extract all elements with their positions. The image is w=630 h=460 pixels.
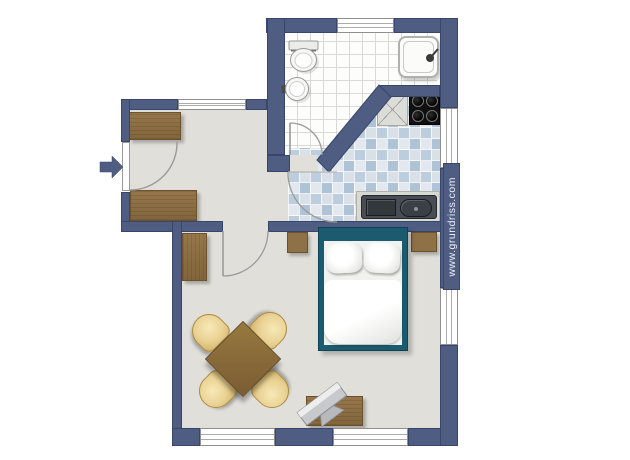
window-bathroom-top [337, 18, 394, 33]
kitchen-counter [356, 191, 440, 222]
watermark-text: www.grundriss.com [446, 177, 458, 277]
window-kitchen-right [440, 108, 458, 168]
window-glass [201, 434, 274, 440]
wall-right-bottom [440, 345, 458, 446]
entrance-arrow-icon [100, 156, 123, 178]
wardrobe [129, 112, 181, 140]
sink-drain [414, 207, 418, 211]
wall-right-top [440, 18, 458, 108]
window-bottom-right [333, 428, 408, 446]
burner [412, 110, 424, 122]
wall-living-left [172, 221, 182, 446]
sideboard [130, 190, 197, 221]
wall-bottom-1 [172, 428, 200, 446]
double-bed [318, 227, 408, 351]
kitchen-doorway-floor [288, 155, 318, 172]
window-glass [446, 109, 452, 167]
mattress [324, 241, 402, 345]
wall-bathroom-left [267, 18, 285, 155]
wall-bottom-2 [275, 428, 333, 446]
floor-plan: www.grundriss.com [0, 0, 630, 460]
tall-cabinet [182, 233, 207, 281]
burner [426, 110, 438, 122]
window-bedroom-right [440, 288, 458, 345]
window-glass [179, 103, 245, 106]
nightstand-left [287, 232, 308, 253]
tv-bench [306, 396, 363, 426]
duvet [324, 280, 402, 344]
wall-hallway-top-right [246, 99, 267, 110]
sink-basin-left [366, 199, 396, 216]
watermark-strip: www.grundriss.com [443, 163, 460, 290]
entrance-door [122, 142, 130, 191]
window-glass [446, 289, 452, 344]
window-hallway-top [178, 99, 246, 110]
sink-basin-right [400, 199, 432, 217]
living-doorway-floor [223, 221, 268, 232]
pillow-right [363, 242, 401, 274]
pillow-left [325, 242, 363, 274]
wall-kitchen-top [379, 85, 440, 97]
shower [398, 36, 439, 78]
window-glass [334, 434, 407, 440]
wall-hallway-left-upper [121, 99, 130, 142]
worktop-x-cabinet [377, 93, 408, 126]
wall-bathroom-corner [267, 155, 290, 172]
window-glass [338, 23, 393, 28]
double-sink [361, 195, 437, 219]
window-bottom-left [200, 428, 275, 446]
nightstand-right [411, 232, 437, 252]
shower-tray [403, 41, 434, 73]
